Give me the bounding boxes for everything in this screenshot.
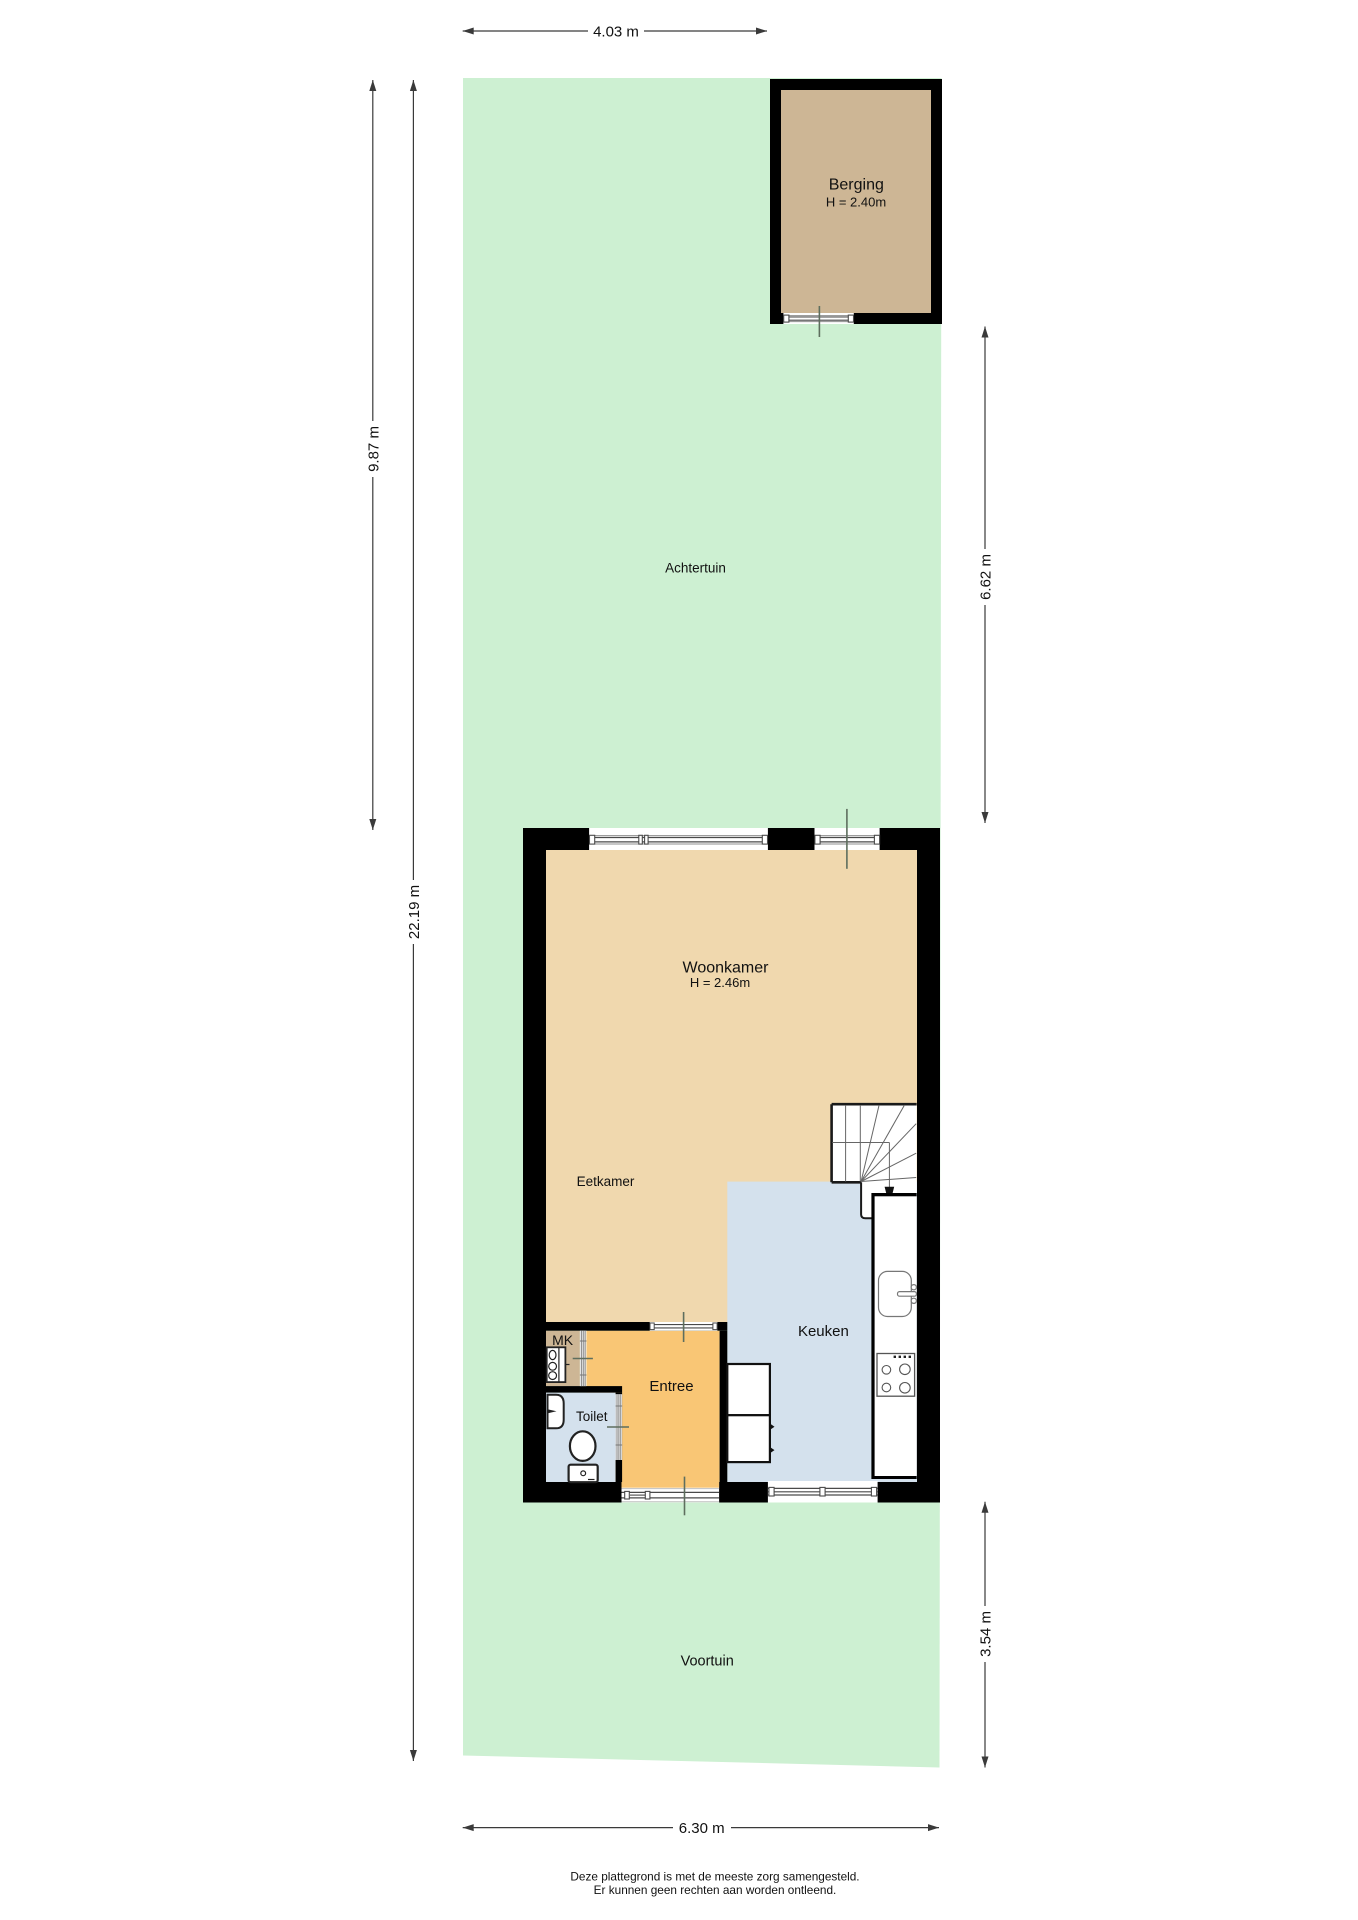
svg-text:Er kunnen geen rechten aan wor: Er kunnen geen rechten aan worden ontlee… <box>594 1883 837 1897</box>
svg-text:Achtertuin: Achtertuin <box>665 561 726 576</box>
svg-text:Eetkamer: Eetkamer <box>577 1174 635 1189</box>
svg-text:4.03 m: 4.03 m <box>593 24 639 41</box>
svg-text:Deze plattegrond is met de mee: Deze plattegrond is met de meeste zorg s… <box>570 1870 859 1884</box>
svg-text:3.54 m: 3.54 m <box>978 1611 995 1657</box>
svg-text:Berging: Berging <box>829 177 884 194</box>
svg-text:H = 2.40m: H = 2.40m <box>826 195 886 210</box>
svg-text:Voortuin: Voortuin <box>681 1653 734 1669</box>
svg-text:9.87 m: 9.87 m <box>365 426 382 472</box>
svg-text:22.19 m: 22.19 m <box>406 885 423 939</box>
svg-text:Keuken: Keuken <box>798 1323 849 1340</box>
svg-text:H = 2.46m: H = 2.46m <box>690 975 750 990</box>
svg-text:MK: MK <box>552 1332 574 1348</box>
svg-text:6.30 m: 6.30 m <box>679 1820 725 1837</box>
svg-text:Entree: Entree <box>649 1378 693 1395</box>
svg-text:6.62 m: 6.62 m <box>978 554 995 600</box>
svg-text:Toilet: Toilet <box>576 1409 608 1424</box>
